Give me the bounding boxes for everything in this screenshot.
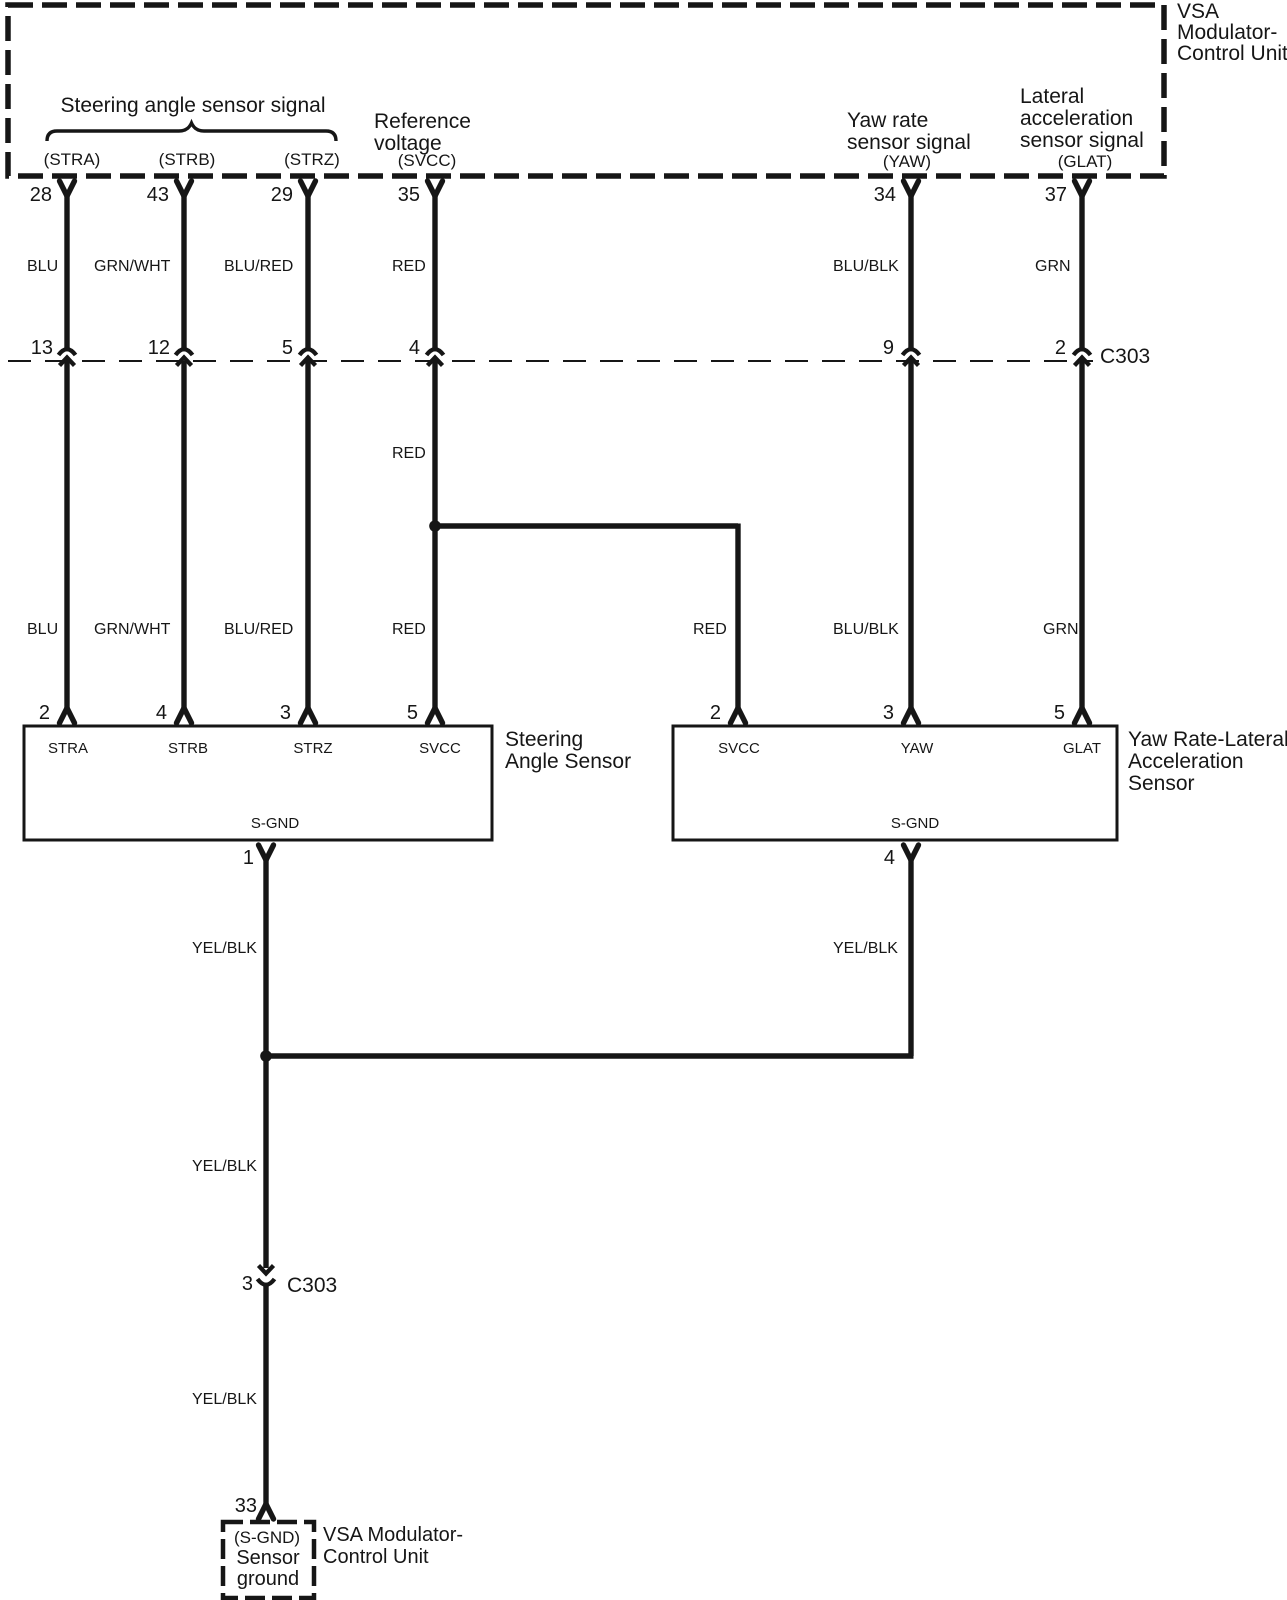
svg-text:Steering: Steering — [505, 728, 583, 751]
svg-text:Modulator-: Modulator- — [1177, 21, 1277, 44]
svg-text:Angle Sensor: Angle Sensor — [505, 750, 631, 773]
svg-text:5: 5 — [407, 702, 418, 724]
svg-text:GRN: GRN — [1043, 621, 1079, 638]
svg-text:(S-GND): (S-GND) — [234, 1528, 300, 1547]
svg-text:GRN/WHT: GRN/WHT — [94, 258, 171, 275]
svg-text:Steering angle sensor signal: Steering angle sensor signal — [60, 94, 325, 117]
svg-text:acceleration: acceleration — [1020, 107, 1133, 130]
svg-text:2: 2 — [710, 702, 721, 724]
svg-text:BLU/BLK: BLU/BLK — [833, 258, 899, 275]
svg-text:(STRZ): (STRZ) — [284, 150, 340, 169]
svg-text:ground: ground — [237, 1568, 299, 1590]
svg-text:34: 34 — [874, 184, 896, 206]
svg-text:3: 3 — [280, 702, 291, 724]
svg-text:VSA: VSA — [1177, 0, 1219, 23]
svg-text:Sensor: Sensor — [236, 1547, 300, 1569]
svg-text:5: 5 — [1054, 702, 1065, 724]
svg-text:S-GND: S-GND — [891, 815, 940, 832]
svg-text:(YAW): (YAW) — [883, 152, 931, 171]
svg-text:4: 4 — [884, 847, 895, 869]
svg-text:4: 4 — [156, 702, 167, 724]
svg-text:5: 5 — [282, 337, 293, 359]
svg-text:13: 13 — [31, 337, 53, 359]
svg-text:Control Unit: Control Unit — [323, 1546, 429, 1568]
svg-text:Sensor: Sensor — [1128, 772, 1195, 795]
svg-text:C303: C303 — [1100, 345, 1150, 368]
svg-text:Reference: Reference — [374, 110, 471, 133]
svg-text:BLU/RED: BLU/RED — [224, 258, 293, 275]
svg-text:sensor signal: sensor signal — [1020, 129, 1144, 152]
svg-text:STRB: STRB — [168, 740, 208, 757]
svg-text:GLAT: GLAT — [1063, 740, 1101, 757]
svg-text:STRA: STRA — [48, 740, 88, 757]
svg-text:29: 29 — [271, 184, 293, 206]
svg-text:SVCC: SVCC — [718, 740, 760, 757]
svg-text:YEL/BLK: YEL/BLK — [192, 940, 257, 957]
svg-text:YEL/BLK: YEL/BLK — [833, 940, 898, 957]
svg-text:Yaw Rate-Lateral: Yaw Rate-Lateral — [1128, 728, 1287, 751]
svg-text:9: 9 — [883, 337, 894, 359]
svg-text:1: 1 — [243, 847, 254, 869]
svg-text:3: 3 — [242, 1273, 253, 1295]
svg-text:BLU: BLU — [27, 621, 58, 638]
svg-text:Lateral: Lateral — [1020, 85, 1084, 108]
svg-text:VSA Modulator-: VSA Modulator- — [323, 1524, 463, 1546]
svg-text:RED: RED — [392, 445, 426, 462]
svg-text:4: 4 — [409, 337, 420, 359]
svg-text:RED: RED — [392, 258, 426, 275]
svg-text:33: 33 — [235, 1495, 257, 1517]
svg-text:28: 28 — [30, 184, 52, 206]
svg-text:BLU/BLK: BLU/BLK — [833, 621, 899, 638]
svg-text:GRN/WHT: GRN/WHT — [94, 621, 171, 638]
svg-text:RED: RED — [392, 621, 426, 638]
svg-text:(STRB): (STRB) — [159, 150, 216, 169]
svg-text:3: 3 — [883, 702, 894, 724]
svg-text:(STRA): (STRA) — [44, 150, 101, 169]
svg-text:BLU: BLU — [27, 258, 58, 275]
svg-text:sensor signal: sensor signal — [847, 131, 971, 154]
svg-text:2: 2 — [39, 702, 50, 724]
svg-text:SVCC: SVCC — [419, 740, 461, 757]
svg-text:37: 37 — [1045, 184, 1067, 206]
svg-text:YEL/BLK: YEL/BLK — [192, 1391, 257, 1408]
svg-text:STRZ: STRZ — [293, 740, 332, 757]
svg-text:35: 35 — [398, 184, 420, 206]
svg-text:Yaw rate: Yaw rate — [847, 109, 928, 132]
svg-text:C303: C303 — [287, 1274, 337, 1297]
svg-text:YAW: YAW — [901, 740, 934, 757]
svg-text:(SVCC): (SVCC) — [398, 151, 457, 170]
svg-text:GRN: GRN — [1035, 258, 1071, 275]
svg-text:YEL/BLK: YEL/BLK — [192, 1158, 257, 1175]
svg-text:2: 2 — [1055, 337, 1066, 359]
svg-text:RED: RED — [693, 621, 727, 638]
svg-text:(GLAT): (GLAT) — [1058, 152, 1112, 171]
svg-text:43: 43 — [147, 184, 169, 206]
svg-text:S-GND: S-GND — [251, 815, 300, 832]
svg-text:12: 12 — [148, 337, 170, 359]
svg-text:Acceleration: Acceleration — [1128, 750, 1244, 773]
svg-text:Control Unit: Control Unit — [1177, 42, 1287, 65]
svg-text:BLU/RED: BLU/RED — [224, 621, 293, 638]
